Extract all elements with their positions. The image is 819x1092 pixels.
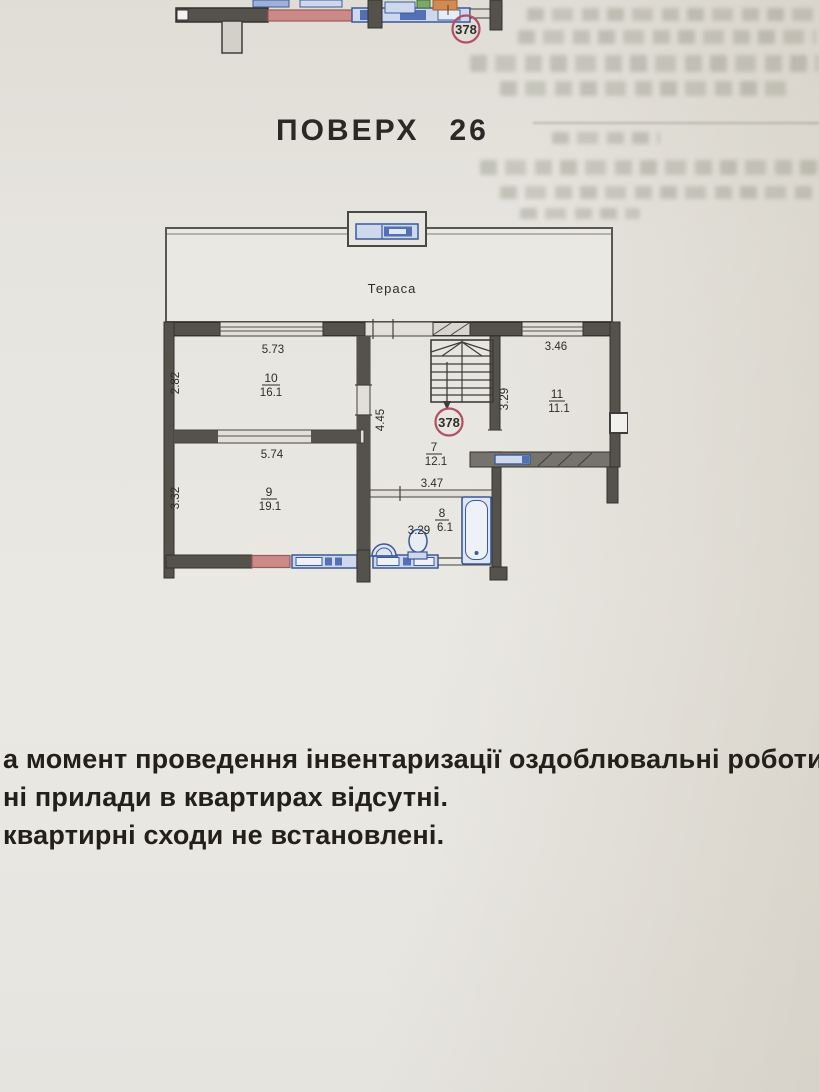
ghost-line (500, 81, 787, 96)
corridor-right-wall (490, 336, 500, 430)
apartment-stamp-number: 378 (455, 22, 477, 37)
room-9-number: 9 (266, 485, 273, 499)
room11-right-wall (610, 322, 620, 467)
bathtub-drain (475, 551, 479, 555)
dim-room9-height: 3.32 (170, 487, 182, 509)
terrace-label: Тераса (368, 281, 417, 296)
window-sash (522, 456, 529, 463)
wall-band (166, 322, 612, 336)
wall-segment (174, 431, 218, 443)
ghost-line (480, 160, 819, 175)
dim-bathroom-width: 3.29 (408, 525, 430, 537)
bathtub (462, 497, 491, 564)
wall-segment (323, 323, 365, 336)
window-slot (389, 229, 406, 234)
ghost-rule (533, 122, 819, 124)
room-9-area: 19.1 (259, 501, 281, 513)
dim-room10-width: 5.73 (262, 344, 284, 356)
dim-corridor-width: 3.47 (421, 478, 443, 490)
wall-stub (357, 550, 370, 582)
dim-room11-height: 3.29 (499, 388, 511, 410)
room-7-area: 12.1 (425, 456, 447, 468)
room-8-number: 8 (439, 506, 446, 520)
note-line-3: квартирні сходи не встановлені. (3, 816, 803, 854)
room-7-number: 7 (431, 440, 438, 454)
note-line-2: ні прилади в квартирах відсутні. (3, 778, 803, 816)
wall-segment (583, 323, 612, 336)
wall-segment (167, 323, 220, 336)
wall-segment (311, 431, 361, 443)
bathroom-right-wall (492, 467, 501, 573)
document-page: 378 ПОВЕРХ26 Тераса (0, 0, 819, 1092)
window-slot (296, 558, 322, 566)
note-line-1: а момент проведення інвентаризації оздоб… (3, 740, 803, 778)
wall-stub (490, 0, 502, 30)
orange-fixture (433, 0, 457, 10)
room-8-area: 6.1 (437, 522, 453, 534)
wall-stub (607, 467, 618, 503)
wall-segment-hatched (433, 323, 470, 336)
room-10-area: 16.1 (260, 387, 282, 399)
ghost-line (552, 132, 660, 144)
left-outer-wall (164, 322, 174, 578)
apartment-stamp-number: 378 (438, 415, 460, 430)
room-10-number: 10 (264, 371, 278, 385)
pink-wall-segment (268, 10, 352, 21)
pink-wall-segment (252, 556, 290, 568)
sink (370, 544, 398, 556)
dim-room9-width: 5.74 (261, 449, 284, 461)
dim-room11-width: 3.46 (545, 341, 567, 353)
wall-stub (368, 0, 382, 28)
window-sash (325, 558, 332, 566)
window-fragment (253, 0, 289, 7)
stairs (431, 340, 493, 410)
page-title: ПОВЕРХ26 (276, 114, 489, 148)
window-slot (377, 558, 399, 566)
wall-segment (166, 555, 252, 568)
wall-segment (470, 323, 522, 336)
door-element (610, 413, 628, 433)
window-fragment (385, 2, 415, 13)
floor-title-number: 26 (449, 114, 488, 147)
window-fragment (300, 0, 342, 7)
ghost-line (500, 186, 816, 199)
wall-notch (177, 10, 188, 20)
inventory-notes: а момент проведення інвентаризації оздоб… (3, 740, 803, 854)
wall-segment (176, 8, 268, 22)
wall-stub (222, 21, 242, 53)
floor-title-label: ПОВЕРХ (276, 114, 419, 147)
room-11-number: 11 (551, 387, 564, 401)
bathroom-top-wall (370, 490, 492, 497)
window-sash (335, 558, 342, 566)
dim-corridor-height: 4.45 (375, 409, 387, 431)
upper-floor-plan-fragment: 378 (0, 0, 819, 62)
wall-stub (490, 567, 507, 580)
floor-plan: Тераса (158, 210, 628, 588)
green-fixture (417, 0, 430, 8)
dim-room10-height: 2.82 (170, 372, 182, 394)
wall-segment (357, 336, 370, 385)
room-11-area: 11.1 (548, 403, 570, 415)
